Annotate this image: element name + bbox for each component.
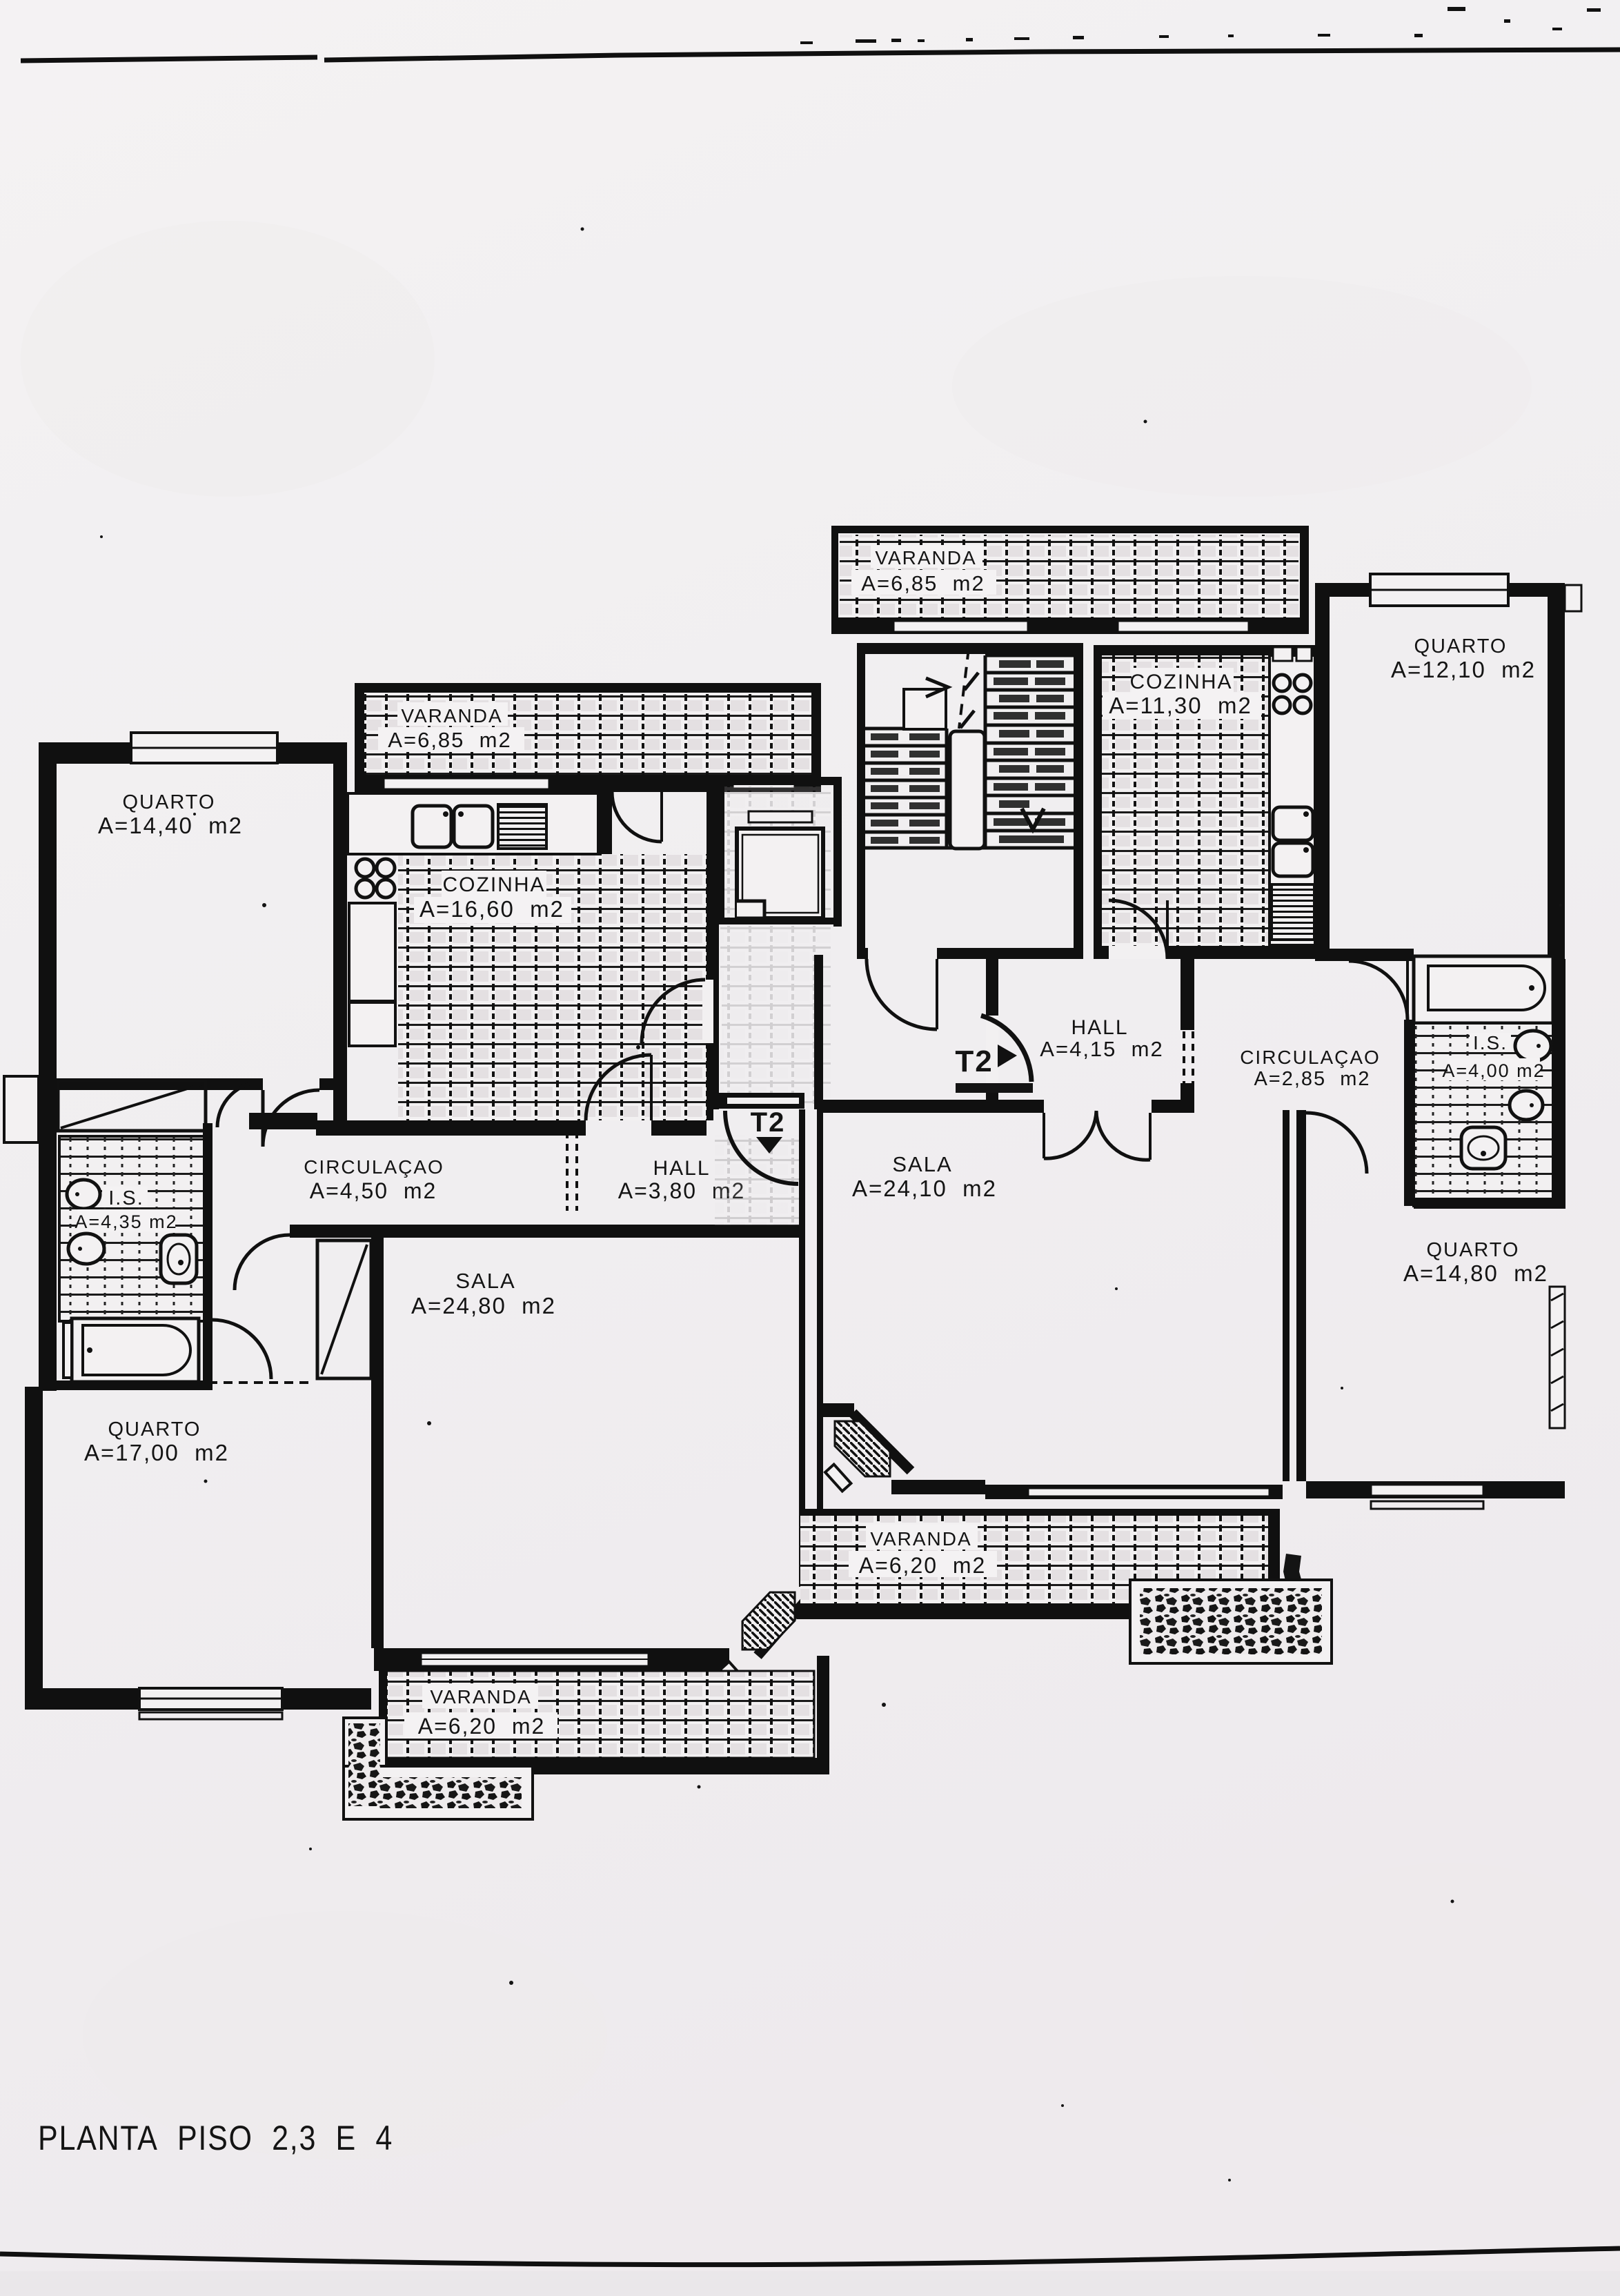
svg-text:T2: T2	[955, 1045, 993, 1078]
svg-text:VARANDA: VARANDA	[870, 1528, 971, 1550]
svg-text:QUARTO: QUARTO	[108, 1418, 201, 1441]
svg-text:A=4,50 m2: A=4,50 m2	[310, 1178, 437, 1203]
svg-text:A=4,00 m2: A=4,00 m2	[1442, 1060, 1545, 1081]
svg-text:A=6,85 m2: A=6,85 m2	[388, 728, 511, 752]
svg-text:A=6,85 m2: A=6,85 m2	[861, 571, 985, 595]
svg-text:A=14,80 m2: A=14,80 m2	[1403, 1260, 1548, 1286]
svg-text:HALL: HALL	[1071, 1016, 1128, 1039]
svg-text:SALA: SALA	[892, 1152, 952, 1176]
svg-text:PLANTA PISO 2,3 E 4: PLANTA PISO 2,3 E 4	[38, 2119, 393, 2157]
svg-text:A=24,80 m2: A=24,80 m2	[411, 1293, 556, 1318]
svg-text:QUARTO: QUARTO	[122, 791, 215, 813]
svg-text:CIRCULAÇAO: CIRCULAÇAO	[1240, 1047, 1381, 1068]
svg-text:QUARTO: QUARTO	[1426, 1239, 1519, 1261]
svg-text:VARANDA: VARANDA	[875, 547, 976, 568]
svg-text:SALA: SALA	[455, 1269, 515, 1293]
svg-text:I.S.: I.S.	[1473, 1032, 1508, 1053]
svg-text:A=6,20 m2: A=6,20 m2	[418, 1714, 546, 1739]
svg-text:A=4,15 m2: A=4,15 m2	[1040, 1037, 1163, 1061]
svg-text:QUARTO: QUARTO	[1414, 635, 1507, 657]
svg-text:A=4,35 m2: A=4,35 m2	[75, 1211, 177, 1232]
svg-text:T2: T2	[751, 1107, 786, 1138]
svg-text:A=6,20 m2: A=6,20 m2	[859, 1553, 987, 1578]
svg-text:A=14,40 m2: A=14,40 m2	[98, 813, 243, 838]
svg-text:CIRCULAÇAO: CIRCULAÇAO	[304, 1156, 444, 1178]
svg-text:VARANDA: VARANDA	[401, 705, 502, 726]
svg-text:A=2,85 m2: A=2,85 m2	[1254, 1068, 1370, 1090]
svg-text:VARANDA: VARANDA	[430, 1686, 531, 1708]
svg-text:COZINHA: COZINHA	[1130, 671, 1233, 693]
svg-text:COZINHA: COZINHA	[443, 873, 546, 896]
svg-text:A=17,00 m2: A=17,00 m2	[84, 1440, 229, 1465]
svg-text:A=12,10 m2: A=12,10 m2	[1391, 657, 1536, 682]
svg-text:A=24,10 m2: A=24,10 m2	[852, 1176, 997, 1201]
svg-text:A=11,30 m2: A=11,30 m2	[1109, 693, 1252, 718]
svg-text:I.S.: I.S.	[108, 1187, 144, 1209]
svg-text:HALL: HALL	[653, 1157, 710, 1180]
svg-text:A=16,60 m2: A=16,60 m2	[419, 896, 564, 922]
